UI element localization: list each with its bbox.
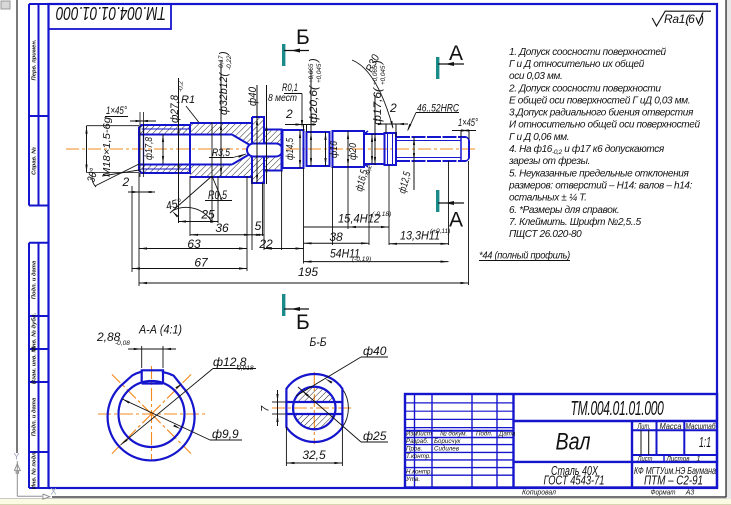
- svg-text:ф17,8: ф17,8: [143, 137, 155, 160]
- svg-text:Разраб.: Разраб.: [406, 438, 428, 445]
- svg-text:Утв.: Утв.: [405, 476, 420, 483]
- svg-text:Взам. инв. №: Взам. инв. №: [32, 346, 38, 385]
- svg-text:ТМ.004.01.01.000: ТМ.004.01.01.000: [56, 3, 166, 23]
- svg-text:Е общей оси поверхностей Г иД: Е общей оси поверхностей Г иД 0,03 мм.: [509, 94, 690, 106]
- svg-text:4. На ф16-0,2 и ф17 к6 допуска: 4. На ф16-0,2 и ф17 к6 допускаются: [509, 143, 665, 156]
- svg-text:67: 67: [194, 256, 209, 270]
- svg-text:ф14,5: ф14,5: [284, 138, 296, 160]
- svg-text:Борисчук: Борисчук: [434, 438, 462, 445]
- svg-text:зарезы от фрезы.: зарезы от фрезы.: [508, 155, 590, 167]
- svg-text:2. Допуск соосности поверхност: 2. Допуск соосности поверхности: [508, 83, 661, 94]
- svg-text:36: 36: [215, 221, 229, 235]
- svg-text:2: 2: [389, 101, 397, 115]
- svg-text:-0,2: -0,2: [178, 81, 185, 92]
- svg-text:Ra1,6: Ra1,6: [664, 12, 695, 26]
- svg-text:-0,22: -0,22: [226, 55, 233, 70]
- svg-text:1:1: 1:1: [699, 434, 711, 451]
- svg-text:Лит.: Лит.: [637, 422, 651, 431]
- svg-text:2: 2: [122, 175, 130, 189]
- svg-text:X: X: [51, 487, 57, 497]
- svg-text:ГОСТ 4543-71: ГОСТ 4543-71: [544, 473, 605, 488]
- svg-text:-0,08: -0,08: [115, 340, 130, 347]
- svg-text:№ докум.: № докум.: [440, 430, 467, 437]
- svg-text:2: 2: [285, 107, 293, 121]
- svg-text:Дата: Дата: [498, 430, 516, 437]
- svg-text:25: 25: [200, 208, 215, 222]
- svg-text:(+0,11): (+0,11): [430, 228, 450, 235]
- svg-text:R1: R1: [181, 94, 195, 106]
- svg-text:Вал: Вал: [556, 429, 591, 456]
- svg-text:Г и Д 0,06 мм.: Г и Д 0,06 мм.: [509, 132, 569, 143]
- svg-text:5. Неуказанные предельные откл: 5. Неуказанные предельные отклонения: [509, 168, 689, 179]
- svg-text:А3: А3: [685, 490, 695, 497]
- svg-text:Б: Б: [296, 311, 310, 334]
- svg-text:Подп. и дата: Подп. и дата: [32, 397, 38, 436]
- svg-text:32,5: 32,5: [302, 448, 326, 462]
- svg-text:ф25: ф25: [363, 429, 387, 443]
- svg-text:Масса: Масса: [660, 422, 683, 431]
- svg-text:1×45°: 1×45°: [106, 105, 127, 117]
- svg-text:Сидилев: Сидилев: [434, 445, 460, 452]
- svg-text:6. *Размеры для справок.: 6. *Размеры для справок.: [509, 205, 619, 216]
- svg-text:ф40: ф40: [247, 86, 259, 106]
- svg-text:А: А: [449, 209, 463, 232]
- svg-text:Б-Б: Б-Б: [310, 337, 327, 349]
- svg-text:А: А: [449, 42, 463, 65]
- svg-text:А-А (4:1): А-А (4:1): [138, 325, 182, 337]
- svg-text:ф20,6(: ф20,6(: [308, 85, 320, 123]
- svg-text:7: 7: [260, 405, 272, 412]
- svg-text:*44 (полный профиль): *44 (полный профиль): [479, 250, 570, 262]
- svg-text:Копировал: Копировал: [522, 490, 556, 497]
- svg-text:+0,045: +0,045: [316, 63, 323, 83]
- svg-text:5: 5: [255, 219, 262, 233]
- svg-text:Лист: Лист: [637, 454, 653, 463]
- svg-text:ТМ.004.01.01.000: ТМ.004.01.01.000: [571, 398, 664, 420]
- svg-text:Подп.: Подп.: [476, 430, 492, 437]
- svg-text:+0,065: +0,065: [308, 63, 315, 83]
- svg-text:-0,17: -0,17: [218, 55, 225, 70]
- svg-text:195: 195: [298, 265, 318, 279]
- svg-text:Б: Б: [296, 26, 310, 49]
- svg-text:3.Допуск радиального биения от: 3.Допуск радиального биения отверстия: [509, 107, 694, 119]
- svg-text:размеров: отверстий – Н14: вал: размеров: отверстий – Н14: валов – h14:: [508, 180, 693, 191]
- svg-text:Y: Y: [14, 452, 20, 462]
- svg-text:Масштаб: Масштаб: [686, 422, 716, 431]
- svg-text:ПЩСТ 26.020-80: ПЩСТ 26.020-80: [509, 229, 582, 240]
- svg-text:(-0,18): (-0,18): [372, 211, 391, 218]
- svg-text:Подп. и дата: Подп. и дата: [32, 260, 38, 299]
- svg-text:Инв. № подл.: Инв. № подл.: [32, 450, 38, 489]
- svg-text:Лист: Лист: [415, 430, 432, 437]
- svg-text:Перв. примен.: Перв. примен.: [32, 39, 38, 80]
- svg-text:ф27,8: ф27,8: [169, 94, 181, 123]
- svg-text:Справ. №: Справ. №: [32, 147, 38, 175]
- svg-text:Г и Д относительно их общей: Г и Д относительно их общей: [509, 58, 645, 70]
- svg-text:38: 38: [329, 230, 343, 244]
- svg-text:7. Клеймить. Шрифт №2,5..5: 7. Клеймить. Шрифт №2,5..5: [509, 216, 642, 228]
- svg-text:ф9,9: ф9,9: [212, 427, 239, 441]
- svg-text:оси 0,03 мм.: оси 0,03 мм.: [509, 71, 562, 82]
- svg-text:1×45°: 1×45°: [458, 117, 478, 129]
- svg-text:(-0,19): (-0,19): [352, 256, 371, 263]
- svg-text:ПТМ – С2-91: ПТМ – С2-91: [644, 474, 703, 488]
- svg-text:ф40: ф40: [363, 344, 387, 358]
- svg-text:22: 22: [258, 237, 273, 251]
- svg-text:1. Допуск соосности поверхност: 1. Допуск соосности поверхностей: [509, 47, 667, 58]
- svg-text:И относительно общей оси повер: И относительно общей оси поверхностей: [509, 119, 700, 131]
- svg-text:ф32b12(: ф32b12(: [218, 72, 230, 115]
- svg-text:Пров.: Пров.: [406, 445, 422, 452]
- svg-text:Инв. № дубл.: Инв. № дубл.: [31, 312, 38, 351]
- svg-text:+0,045: +0,045: [380, 65, 387, 85]
- svg-text:63: 63: [187, 237, 201, 251]
- svg-text:ф17,6(: ф17,6(: [372, 87, 384, 125]
- svg-text:Т.контр.: Т.контр.: [406, 453, 431, 460]
- svg-text:Формат: Формат: [651, 490, 676, 497]
- svg-text:Н.контр.: Н.контр.: [406, 468, 432, 475]
- svg-text:Листов: Листов: [666, 454, 690, 463]
- svg-text:1: 1: [696, 454, 700, 463]
- svg-text:ф16: ф16: [328, 141, 340, 158]
- svg-text:остальных ± ¼ Т.: остальных ± ¼ Т.: [509, 192, 587, 204]
- svg-text:ф20: ф20: [347, 143, 359, 160]
